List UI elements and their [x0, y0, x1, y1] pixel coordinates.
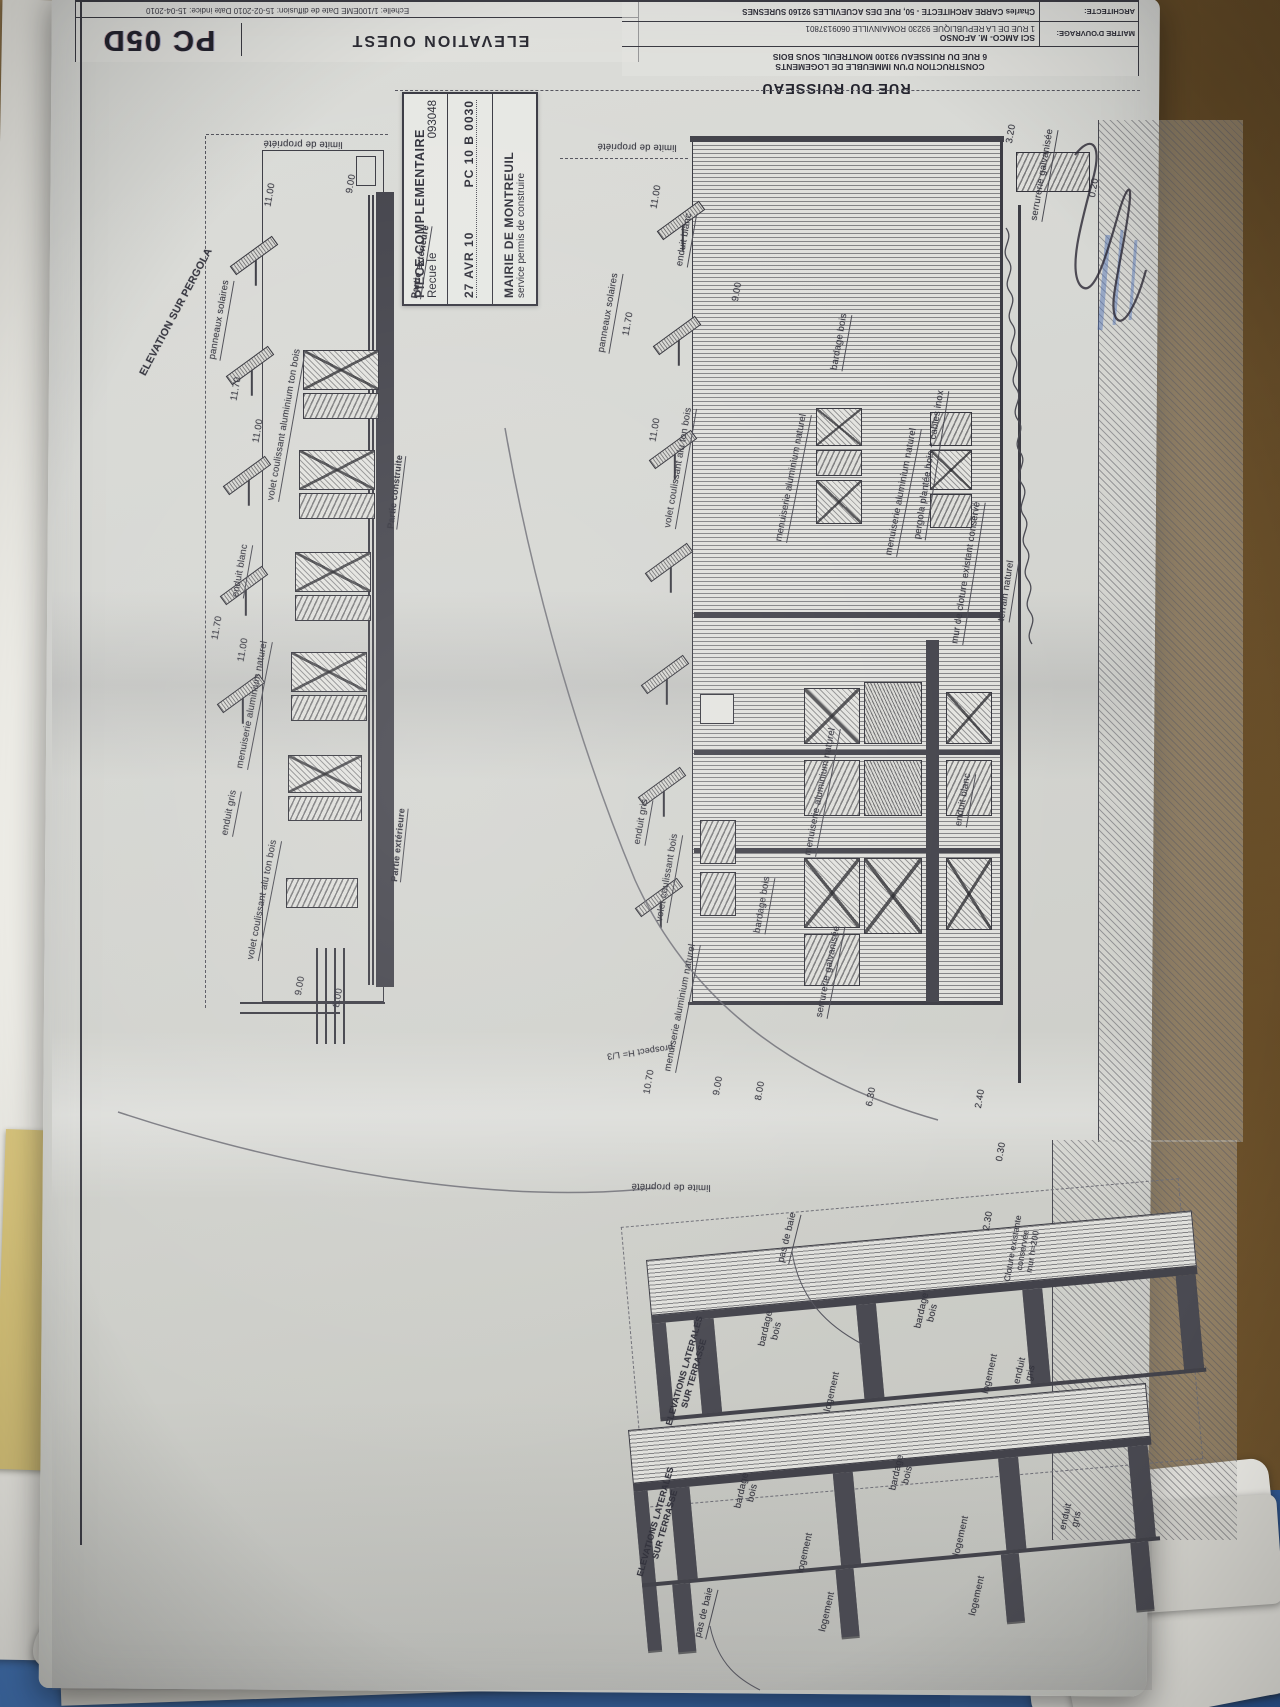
- annotation-label: volet coulissant bois: [655, 833, 683, 923]
- annotation-label: pas de baie: [777, 1212, 802, 1265]
- annotation-label: 11.00: [264, 182, 279, 208]
- annotation-label: bardage bois: [830, 313, 853, 372]
- annotation-label: volet coulissant alu ton bois: [246, 839, 282, 961]
- annotation-label: 10.70: [642, 1069, 657, 1095]
- annotation-label: ELEVATIONS LATERALES SUR TERRASSE: [664, 1315, 715, 1430]
- annotation-label: bardage bois: [888, 1454, 917, 1494]
- annotation-label: enduit blanc: [954, 772, 976, 827]
- annotation-label: ELEVATION SUR PERGOLA: [137, 246, 215, 378]
- annotation-label: 11.00: [650, 184, 665, 210]
- annotations-layer: ELEVATION SUR PERGOLAlimite de propriété…: [0, 0, 1280, 1707]
- annotation-label: Partie construite: [385, 454, 406, 529]
- annotation-label: panneaux solaires: [208, 279, 235, 361]
- annotation-label: volet coulissant aluminium ton bois: [266, 348, 305, 502]
- annotation-label: terrain naturel: [997, 560, 1019, 623]
- annotation-label: Cloture existante conservée mur h=200: [1003, 1214, 1044, 1285]
- annotation-label: 2.30: [982, 1211, 996, 1232]
- annotation-label: logement: [818, 1591, 838, 1633]
- annotation-label: menuiserie aluminium naturel: [774, 413, 811, 543]
- annotation-label: 11.70: [622, 311, 637, 337]
- annotation-label: enduit blanc: [675, 212, 697, 267]
- annotation-label: bardage bois: [757, 1310, 786, 1350]
- annotation-label: bardage bois: [913, 1292, 942, 1332]
- annotation-label: menuiserie aluminium naturel: [663, 943, 700, 1073]
- annotation-label: logement: [823, 1371, 843, 1413]
- annotation-label: 8.00: [754, 1081, 768, 1102]
- annotation-label: 11.70: [211, 615, 226, 641]
- annotation-label: 11.00: [252, 418, 267, 444]
- annotation-label: enduit blanc: [231, 543, 253, 598]
- annotation-label: logement: [952, 1515, 972, 1557]
- annotation-label: 0.30: [995, 1142, 1009, 1163]
- sheet-content: ELEVATION OUEST PC 05D Echelle: 1/100EME…: [0, 0, 1280, 1707]
- annotation-label: 11.00: [237, 637, 252, 663]
- annotation-label: panneaux solaires: [597, 272, 624, 354]
- annotation-label: pergola plantée bois + cables inox: [913, 390, 949, 541]
- annotation-label: 9.00: [712, 1076, 726, 1097]
- annotation-label: limite de propriété: [631, 1180, 710, 1192]
- annotation-label: 6.30: [865, 1087, 879, 1108]
- annotation-label: volet coulissant alu ton bois: [663, 407, 697, 529]
- annotation-label: limite de propriété: [263, 137, 342, 149]
- annotation-label: Partie extérieure: [389, 808, 409, 883]
- annotation-label: Partie extérieure: [409, 225, 433, 300]
- annotation-label: logement: [981, 1353, 1001, 1395]
- annotation-label: logement: [968, 1575, 988, 1617]
- annotation-label: 3.20: [1005, 124, 1019, 145]
- photo-of-architectural-drawing: ELEVATION OUEST PC 05D Echelle: 1/100EME…: [0, 0, 1280, 1707]
- annotation-label: enduit gris: [1012, 1356, 1039, 1387]
- annotation-label: logement: [796, 1532, 816, 1574]
- annotation-label: ELEVATIONS LATERALES SUR TERRASSE: [635, 1466, 686, 1581]
- annotation-label: 2.40: [974, 1089, 988, 1110]
- annotation-label: 11.70: [230, 376, 245, 402]
- annotation-label: serrurerie galvanisée: [815, 925, 845, 1019]
- annotation-label: serrurerie galvanisée: [1030, 128, 1059, 222]
- annotation-label: 0.20: [1088, 178, 1102, 199]
- annotation-label: mur de cloture existant conservé: [950, 501, 985, 645]
- annotation-label: enduit gris: [220, 789, 241, 837]
- annotation-label: bardage bois: [753, 876, 776, 935]
- annotation-label: bardage bois: [733, 1472, 762, 1512]
- annotation-label: 8.00: [332, 988, 346, 1009]
- annotation-label: limite de propriété: [597, 140, 676, 152]
- annotation-label: enduit gris: [1058, 1502, 1085, 1533]
- annotation-label: 11.00: [649, 417, 664, 443]
- annotation-label: enduit gris: [633, 798, 654, 846]
- annotation-label: 9.00: [294, 976, 308, 997]
- annotation-label: menuiserie aluminium naturel: [803, 727, 840, 857]
- annotation-label: 9.00: [731, 282, 745, 303]
- annotation-label: 9.00: [345, 174, 359, 195]
- annotation-label: pas de baie: [694, 1587, 719, 1640]
